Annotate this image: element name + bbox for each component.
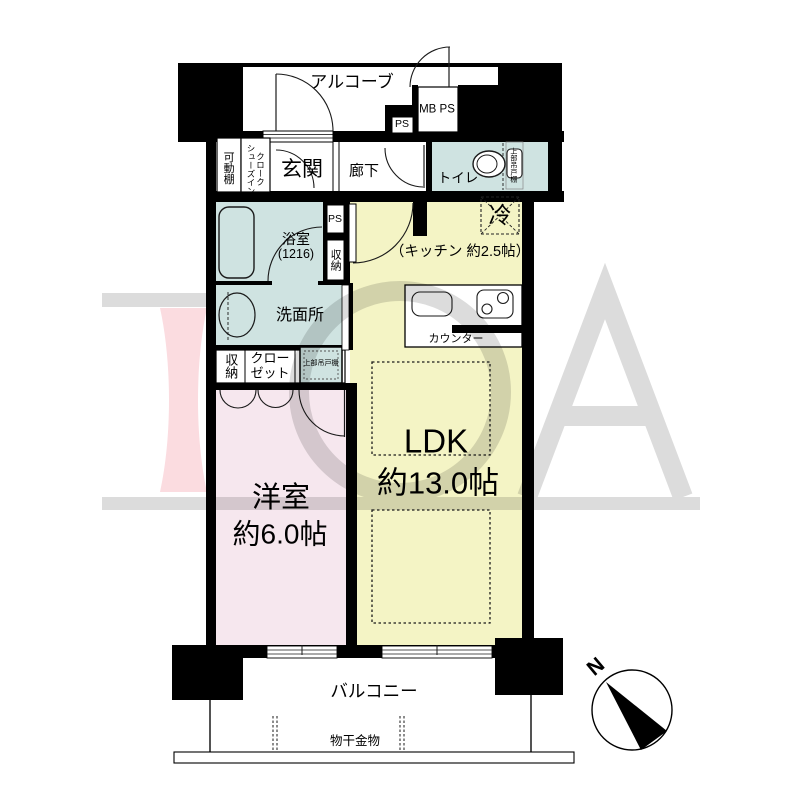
floor-plan-drawing [0,0,800,800]
western-room-fill [216,390,346,645]
entrance-door-arc [276,74,333,131]
ldk-fill [350,202,522,645]
bath-room-fill [216,202,323,285]
washroom-fill [216,285,342,350]
floor-plan-page: アルコーブ MB PS PS 玄関 廊下 トイレ 可動棚 シューズインクローク … [0,0,800,800]
balcony-rail [174,752,574,763]
